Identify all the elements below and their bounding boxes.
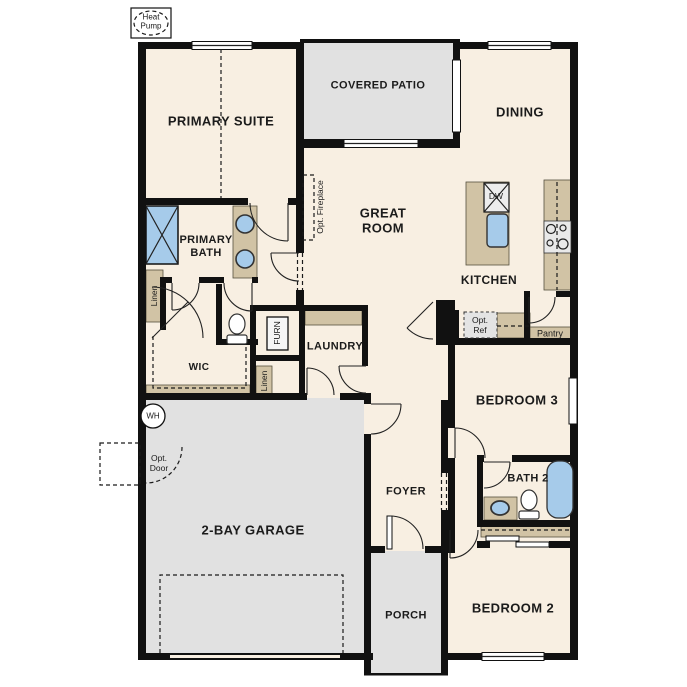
room-label-kitchen: KITCHEN	[461, 273, 517, 287]
room-label-bath2: BATH 2	[507, 473, 549, 486]
room-label-bedroom2: BEDROOM 2	[472, 600, 554, 615]
opt-door-box	[100, 443, 140, 485]
floor-plan: Heat Pump PRIMARY SUITE COVERED PATIO DI…	[0, 0, 687, 687]
pantry-label: Pantry	[537, 329, 563, 340]
room-label-primary-suite: PRIMARY SUITE	[166, 113, 276, 128]
front-door-leaf	[387, 516, 392, 549]
toilet-bath2	[521, 490, 537, 510]
floor-fills	[138, 41, 578, 673]
room-label-wic: WIC	[189, 362, 210, 374]
room-label-garage: 2-BAY GARAGE	[201, 522, 305, 537]
bedroom3-window	[569, 378, 577, 424]
opt-ref-label: Opt. Ref	[465, 315, 495, 335]
room-label-dining: DINING	[496, 104, 544, 119]
island-sink	[487, 214, 508, 247]
linen-label-2: Linen	[259, 371, 269, 392]
room-label-foyer: FOYER	[386, 486, 426, 499]
toilet-primary	[229, 314, 245, 334]
opt-door-label: Opt. Door	[143, 453, 175, 473]
dishwasher-label: DW	[489, 191, 503, 201]
room-label-primary-bath: PRIMARY BATH	[167, 234, 245, 260]
room-label-bedroom3: BEDROOM 3	[476, 392, 558, 407]
heat-pump-label: Heat Pump	[133, 13, 169, 32]
room-label-great-room: GREAT ROOM	[340, 206, 426, 237]
opt-fireplace-label: Opt. Fireplace	[315, 180, 325, 233]
linen-label-1: Linen	[149, 286, 159, 307]
room-label-porch: PORCH	[385, 610, 427, 623]
room-label-covered-patio: COVERED PATIO	[330, 80, 426, 93]
bathtub	[547, 461, 573, 518]
vanity-sink-1	[236, 215, 254, 233]
furnace-label: FURN	[272, 321, 282, 345]
room-label-laundry: LAUNDRY	[307, 341, 363, 354]
patio-side-window	[453, 60, 461, 132]
closet-bypass-door-2	[516, 542, 549, 547]
water-heater-label: WH	[146, 411, 159, 420]
bath2-sink	[491, 501, 509, 515]
closet-bypass-door-1	[486, 536, 519, 541]
laundry-shelf	[305, 310, 362, 325]
